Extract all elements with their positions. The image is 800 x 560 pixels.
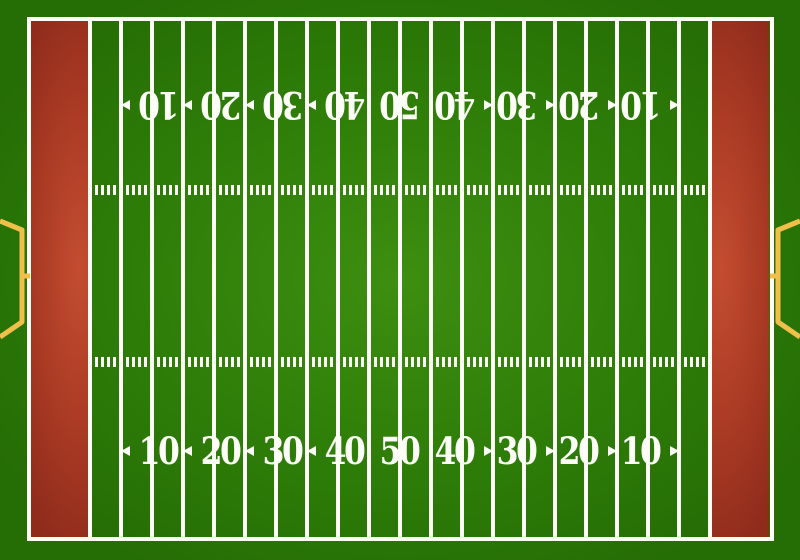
- arrow-right-icon: [121, 100, 130, 110]
- arrow-left-icon: [307, 446, 316, 456]
- arrow-right-icon: [245, 100, 254, 110]
- goalpost-right-icon: [768, 213, 800, 345]
- arrow-right-icon: [307, 100, 316, 110]
- football-field: 102030405040302010102030405040302010: [0, 0, 800, 560]
- yard-number: 30: [496, 87, 537, 124]
- yard-number: 40: [434, 87, 475, 124]
- yard-number: 10: [620, 87, 661, 124]
- arrow-left-icon: [183, 446, 192, 456]
- arrow-right-icon: [670, 446, 679, 456]
- yard-number: 10: [620, 433, 661, 470]
- yard-number-unit: 10: [600, 85, 696, 125]
- yard-number: 40: [434, 433, 475, 470]
- yard-number: 30: [496, 433, 537, 470]
- arrow-left-icon: [121, 446, 130, 456]
- goalpost-left-icon: [0, 213, 32, 345]
- yard-number: 20: [558, 433, 599, 470]
- yard-number: 20: [558, 87, 599, 124]
- arrow-left-icon: [245, 446, 254, 456]
- arrow-left-icon: [670, 100, 679, 110]
- yard-number-unit: 10: [600, 431, 696, 471]
- arrow-right-icon: [183, 100, 192, 110]
